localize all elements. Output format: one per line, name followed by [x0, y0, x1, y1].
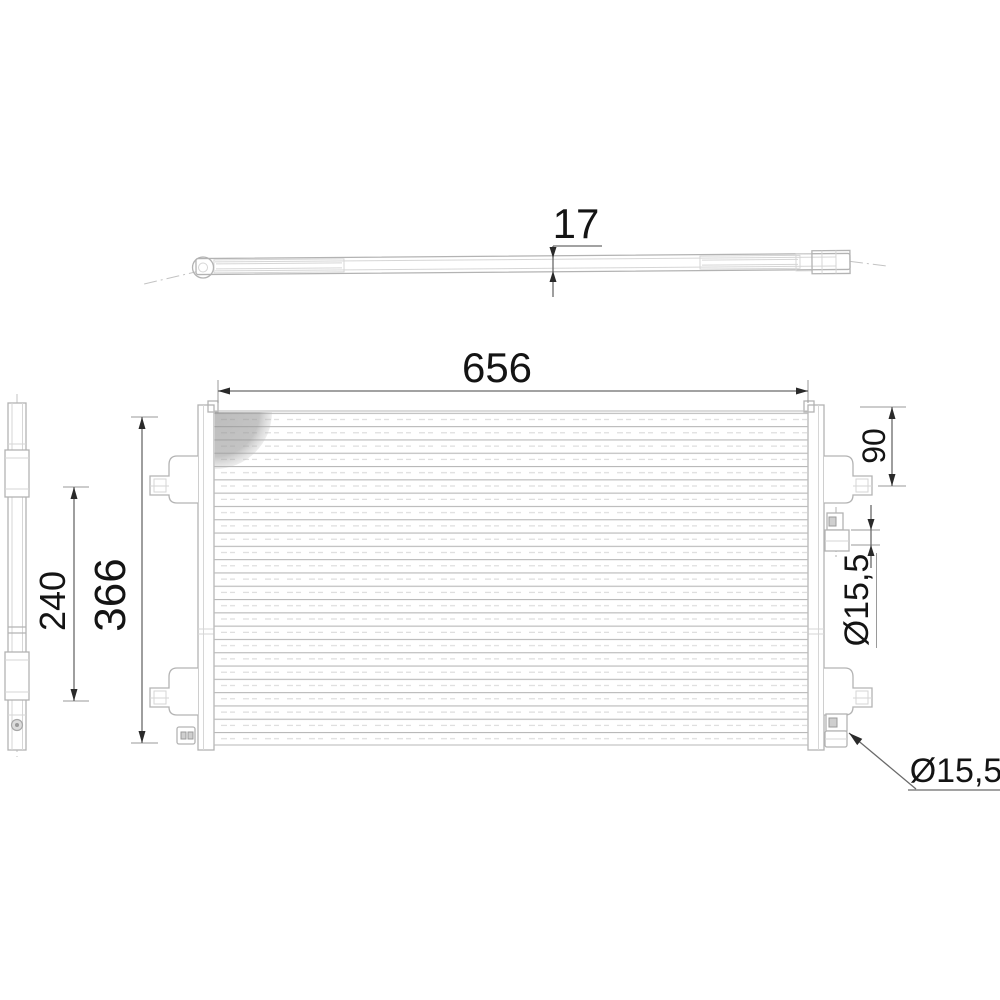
- tube-body: [196, 253, 850, 274]
- front-view: [150, 401, 872, 750]
- bottom-left-clevis: [177, 727, 195, 744]
- mount-block-lower: [5, 652, 29, 700]
- top-profile-view: [144, 250, 888, 284]
- drawing-root: 17 656 366 240 90 Ø15,5 Ø15,5: [0, 0, 1000, 1000]
- bracket-bottom-right: [824, 668, 872, 715]
- mount-block-upper: [5, 450, 29, 497]
- dim-port-diameter-bottom-label: Ø15,5: [910, 754, 1000, 788]
- bracket-top-left: [150, 456, 198, 503]
- bracket-bottom-left: [150, 668, 198, 715]
- dim-port-diameter-top-label: Ø15,5: [840, 554, 874, 647]
- dim-overall-height-label: 366: [89, 558, 133, 631]
- centerline-tail-right: [850, 261, 888, 266]
- side-profile-view: [5, 394, 29, 757]
- port-upper: [825, 507, 849, 557]
- centerline-tail-left: [144, 272, 197, 284]
- dim-inlet-offset-label: 90: [858, 428, 890, 464]
- port-lower: [825, 714, 847, 747]
- technical-drawing-canvas: [0, 0, 1000, 1000]
- dim-thickness-label: 17: [553, 203, 600, 245]
- dim-bracket-spacing-label: 240: [35, 571, 71, 631]
- dim-core-width-label: 656: [462, 347, 532, 389]
- condenser-core: [214, 411, 808, 745]
